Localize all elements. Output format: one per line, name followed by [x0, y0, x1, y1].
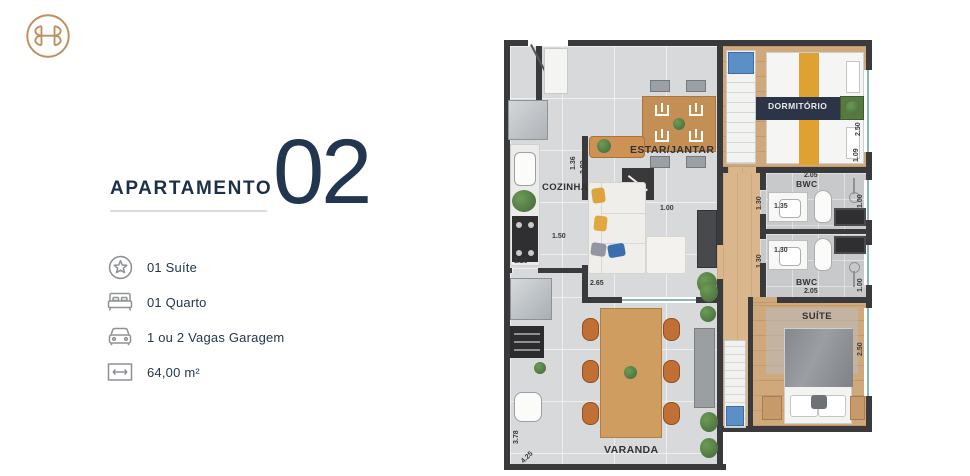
wall-bwc-divider [760, 229, 872, 234]
single-bed-1 [766, 52, 864, 98]
page-title: APARTAMENTO [110, 178, 272, 200]
pillow-orange [591, 187, 606, 204]
varanda-chair [663, 318, 680, 341]
laundry-door-opening [512, 268, 538, 273]
varanda-sink [514, 392, 542, 422]
dim-label: 1.30 [756, 196, 763, 210]
suite-nightstand-left [762, 396, 782, 420]
suite-door-opening [753, 297, 777, 303]
dining-chair [686, 80, 706, 92]
varanda-chair [663, 402, 680, 425]
dormitorio-door-opening [728, 167, 756, 173]
dim-label: 2.50 [857, 342, 864, 356]
brand-logo [24, 12, 72, 60]
varanda-glass-line [622, 299, 696, 301]
hall-wardrobe-blue-box [726, 406, 744, 426]
dim-label: 1.00 [857, 278, 864, 292]
sofa-chaise [646, 236, 686, 274]
laundry-plant [534, 362, 546, 374]
wardrobe-blue-box [728, 52, 754, 74]
shower-bench-lower [834, 236, 866, 254]
area-width-icon [105, 359, 135, 385]
feature-label: 01 Quarto [147, 295, 207, 310]
varanda-chair [582, 402, 599, 425]
varanda-plant [700, 306, 716, 322]
floor-plan: ESTAR/JANTAR COZINHA DORMITÓRIO BWC BWC … [504, 40, 872, 470]
dim-label: 1.30 [774, 247, 788, 254]
stove [512, 216, 538, 262]
apartment-info-panel: APARTAMENTO 02 01 Suíte [110, 150, 410, 245]
hall-cabinet [697, 210, 717, 268]
feature-area: 64,00 m² [105, 359, 405, 385]
bwc1-window-glass [867, 180, 869, 220]
wall-suite-left [748, 297, 753, 432]
feature-label: 1 ou 2 Vagas Garagem [147, 330, 284, 345]
dormitorio-window-glass [867, 70, 869, 152]
varanda-plant [700, 282, 718, 302]
bwc2-toilet [814, 238, 832, 271]
dim-label: 1.00 [857, 194, 864, 208]
dim-label: 1.20 [514, 258, 528, 265]
bwc2-sink-counter [768, 240, 808, 270]
dining-table-plant [673, 118, 685, 130]
feature-suite: 01 Suíte [105, 254, 405, 280]
varanda-chair [663, 360, 680, 383]
title-underline [110, 210, 267, 212]
console-plant [597, 139, 611, 153]
star-circle-icon [105, 254, 135, 280]
dim-label: 1.30 [756, 254, 763, 268]
pillow-yellow [593, 215, 607, 231]
dim-label: 2.92 [580, 160, 587, 174]
bwc2-label: BWC [796, 277, 818, 287]
feature-list: 01 Suíte 01 Quarto [105, 254, 405, 394]
dining-chair [650, 80, 670, 92]
varanda-table-plant [624, 366, 637, 379]
ornamental-h-monogram-icon [24, 12, 72, 60]
varanda-chair [582, 360, 599, 383]
dim-label: 1.09 [853, 148, 860, 162]
feature-quarto: 01 Quarto [105, 289, 405, 315]
pillow-gray [590, 242, 607, 257]
feature-label: 64,00 m² [147, 365, 200, 380]
single-bed-2 [766, 118, 864, 164]
dim-label: 2.05 [804, 172, 818, 179]
hall-door-opening [717, 245, 723, 279]
bwc2-window-glass [867, 245, 869, 285]
suite-label: SUÍTE [802, 311, 832, 322]
feature-label: 01 Suíte [147, 260, 197, 275]
dormitorio-plant [846, 101, 859, 114]
varanda-chair [582, 318, 599, 341]
varanda-label: VARANDA [604, 444, 659, 456]
dormitorio-label: DORMITÓRIO [768, 101, 827, 111]
dim-label: 1.36 [570, 156, 577, 170]
bwc2-shower-head [849, 262, 860, 273]
dim-label: 1.50 [552, 233, 566, 240]
entry-shelf [544, 48, 568, 94]
unit-number: 02 [273, 126, 369, 218]
wall-varanda-wing [717, 302, 723, 470]
bwc1-label: BWC [796, 179, 818, 189]
car-icon [105, 324, 135, 350]
dim-label: 2.05 [804, 288, 818, 295]
title-block: APARTAMENTO 02 [110, 150, 410, 245]
suite-nightstand-right [850, 396, 865, 420]
dining-chair [686, 156, 706, 168]
dim-label: 1.35 [774, 203, 788, 210]
churrasqueira-grill [510, 326, 544, 358]
entry-door-opening [528, 40, 568, 46]
cozinha-label: COZINHA [542, 182, 588, 193]
bed-icon [105, 289, 135, 315]
bwc2-shower-pipe [853, 271, 855, 287]
suite-window-glass [867, 308, 869, 396]
dining-chair [650, 156, 670, 168]
varanda-plant [700, 438, 718, 458]
estar-label: ESTAR/JANTAR [630, 144, 714, 156]
suite-double-bed [784, 328, 852, 424]
shower-bench-upper [834, 208, 866, 226]
bwc1-toilet [814, 190, 832, 223]
dim-label: 1.00 [660, 205, 674, 212]
dim-label: 2.50 [855, 122, 862, 136]
dim-label: 2.65 [590, 280, 604, 287]
bwc1-shower-pipe [853, 178, 855, 194]
dim-label: 3.78 [513, 430, 520, 444]
feature-garagem: 1 ou 2 Vagas Garagem [105, 324, 405, 350]
fridge [508, 100, 548, 140]
wall-bottom-varanda [504, 464, 726, 470]
varanda-plant [700, 412, 718, 432]
washing-machine [510, 278, 552, 320]
kitchen-sink [514, 152, 536, 186]
kitchen-plant [512, 190, 536, 212]
varanda-sideboard [694, 328, 715, 408]
